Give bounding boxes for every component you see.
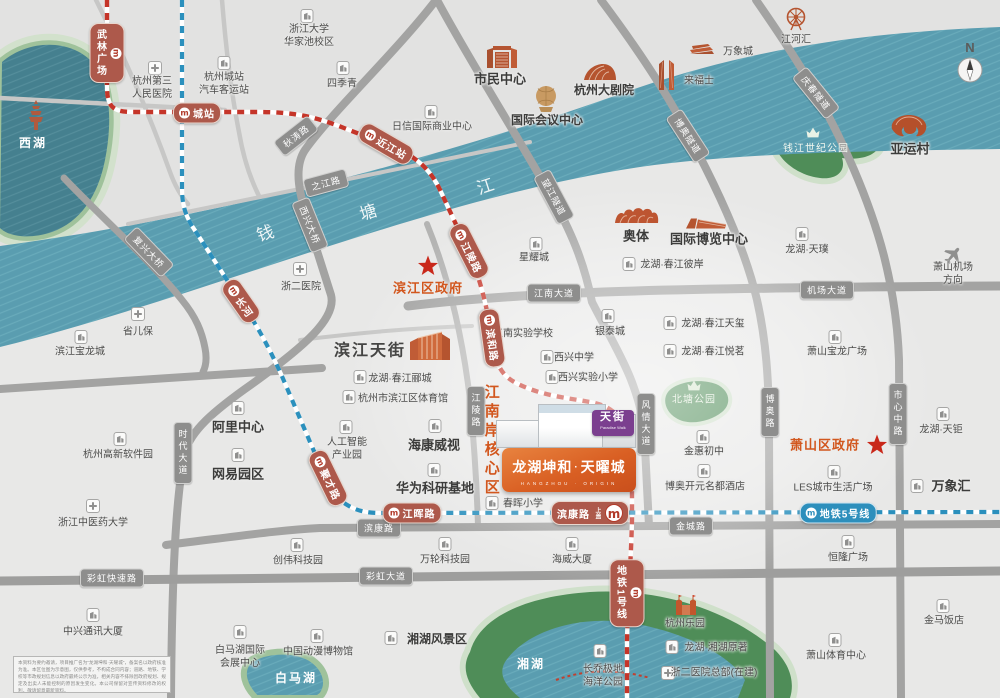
- place-label: 江河汇: [781, 34, 811, 47]
- place-label: 龙湖·春江郦城: [368, 373, 431, 386]
- building-icon: [698, 464, 711, 478]
- road-label: 复兴大桥: [123, 226, 174, 278]
- place-label: 西湖: [19, 136, 47, 152]
- building-icon: [664, 344, 677, 358]
- building-icon: [566, 537, 579, 551]
- road-label: 望江隧道: [533, 169, 575, 226]
- olympic-stadium-icon: [614, 207, 660, 225]
- place-label: 杭州高新软件园: [83, 449, 153, 462]
- building-icon: [439, 537, 452, 551]
- station-label: 地铁1号线: [613, 565, 628, 621]
- road-label: 彩虹大道: [359, 567, 413, 586]
- place-label: 杭州乐园: [665, 618, 705, 631]
- place-label: 杭州城站 汽车客运站: [199, 71, 249, 97]
- place-label: 滨江宝龙城: [55, 346, 105, 359]
- building-icon: [343, 390, 356, 404]
- road-label: 西兴大桥: [291, 196, 329, 253]
- ferris-wheel-icon: [785, 7, 807, 31]
- place-label: LES城市生活广场: [794, 482, 873, 495]
- place-label: 中国动漫博物馆: [283, 646, 353, 659]
- metro-logo-icon: m: [111, 48, 122, 59]
- metro-station: m武林广场: [90, 23, 125, 83]
- place-label: 金马饭店: [924, 615, 964, 628]
- station-label: 滨康路: [557, 506, 590, 521]
- place-label: 龙湖·春江彼岸: [640, 259, 703, 272]
- building-icon: [425, 105, 438, 119]
- place-label: 恒隆广场: [828, 552, 868, 565]
- building-icon: [354, 370, 367, 384]
- river-name-char: 塘: [357, 200, 381, 227]
- place-label: 龙湖·湘湖原著: [684, 642, 747, 655]
- paradise-walk-sublabel: Paradise Walk: [592, 425, 634, 430]
- metro-logo-icon: m: [483, 314, 495, 326]
- place-label: 市民中心: [474, 72, 526, 89]
- place-label: 萧山宝龙广场: [807, 346, 867, 359]
- place-label: 华为科研基地: [396, 481, 474, 498]
- metro-logo-icon: m: [179, 108, 190, 119]
- building-icon: [829, 633, 842, 647]
- place-label: 奥体: [623, 229, 649, 246]
- star-icon: [417, 256, 439, 277]
- station-label: 近江站: [374, 133, 410, 162]
- place-label: 西兴实验小学: [558, 372, 618, 385]
- building-icon: [541, 350, 554, 364]
- building-icon: [311, 629, 324, 643]
- station-label: 城站: [193, 106, 215, 121]
- building-icon: [594, 644, 607, 658]
- road-label: 机场大道: [800, 281, 854, 300]
- place-label: 创伟科技园: [273, 555, 323, 568]
- property-subtitle: HANGZHOU · ORIGIN: [502, 481, 636, 486]
- place-label: 长乔极地 海洋公园: [583, 663, 623, 689]
- place-label: 浙江大学 华家池校区: [284, 23, 334, 49]
- station-label: 江陵路: [458, 239, 486, 275]
- place-label: 国际博览中心: [670, 232, 748, 249]
- road-label: 博奥隧道: [665, 108, 710, 164]
- hospital-icon: [148, 61, 162, 75]
- place-label: 浙江中医药大学: [58, 517, 128, 530]
- metro-station: m滨和路: [477, 307, 506, 368]
- metro-logo-icon: m: [313, 454, 328, 469]
- building-icon: [340, 420, 353, 434]
- metro-station: m江陵路: [446, 220, 491, 282]
- metro-station: 滨康路上盖m: [551, 501, 629, 525]
- park-icon: [688, 381, 701, 392]
- expo-center-icon: [685, 216, 729, 231]
- building-icon: [842, 535, 855, 549]
- road-label: 秋涛路: [273, 115, 319, 157]
- station-label: 长河: [233, 293, 258, 320]
- place-label: 海康威视: [408, 438, 460, 455]
- building-icon: [546, 370, 559, 384]
- property-marker: 天街 Paradise Walk 龙湖坤和·天曜城 HANGZHOU · ORI…: [494, 400, 642, 494]
- station-label: 武林广场: [93, 29, 108, 77]
- building-icon: [337, 61, 350, 75]
- park-icon: [807, 128, 820, 139]
- place-label: 钱江世纪公园: [783, 143, 849, 156]
- mixc-mall-icon: [688, 42, 716, 56]
- road-label: 庆春隧道: [792, 66, 841, 120]
- river-name-char: 江: [474, 174, 498, 201]
- place-label: 白马湖国际 会展中心: [215, 644, 265, 670]
- property-logo-plate: 龙湖坤和·天曜城 HANGZHOU · ORIGIN: [502, 448, 636, 492]
- building-icon: [937, 407, 950, 421]
- place-label: 春晖小学: [503, 498, 543, 511]
- civic-center-icon: [485, 44, 519, 68]
- building-icon: [87, 608, 100, 622]
- pagoda-icon: [27, 100, 45, 130]
- station-label: 聚才路: [317, 466, 345, 502]
- building-icon: [232, 401, 245, 415]
- building-icon: [530, 237, 543, 251]
- metro-logo-icon: m: [605, 504, 623, 522]
- place-label: 杭州市滨江区体育馆: [358, 393, 448, 406]
- building-icon: [911, 479, 924, 493]
- road-label: 博奥路: [761, 387, 780, 437]
- place-label: 网易园区: [212, 467, 264, 484]
- building-icon: [697, 430, 710, 444]
- place-label: 万象城: [723, 46, 753, 59]
- metro-station: m城站: [173, 103, 221, 124]
- road-label: 江南大道: [527, 284, 581, 303]
- compass: N: [952, 40, 988, 88]
- metro-station: m地铁1号线: [610, 559, 645, 627]
- place-label: 海威大厦: [552, 554, 592, 567]
- building-icon: [623, 257, 636, 271]
- place-label: 湘湖: [517, 657, 545, 673]
- building-icon: [218, 56, 231, 70]
- place-label: 杭州大剧院: [574, 83, 634, 99]
- metro-station: m江晖路: [383, 503, 442, 524]
- place-label: 浙二医院: [281, 281, 321, 294]
- place-label: 日信国际商业中心: [392, 121, 472, 134]
- place-label: 白马湖: [275, 671, 317, 687]
- metro-station: m地铁5号线: [800, 503, 877, 524]
- station-label: 江晖路: [403, 506, 436, 521]
- place-label: 龙湖·天钜: [919, 424, 962, 437]
- place-label: 萧山机场方向: [930, 261, 977, 287]
- place-label: 阿里中心: [212, 420, 264, 437]
- place-label: 银泰城: [595, 326, 625, 339]
- road-label: 金城路: [669, 517, 713, 536]
- hospital-icon: [293, 262, 307, 276]
- building-icon: [429, 419, 442, 433]
- station-label: 滨和路: [483, 328, 502, 363]
- disclaimer-text: 本资料为要约邀请，项目推广名为“龙湖坤和·天曜城”，备案名以政府核准为准。本区位…: [18, 660, 166, 693]
- place-label: 万轮科技园: [420, 554, 470, 567]
- place-label: 国际会议中心: [511, 113, 583, 129]
- property-name: 天曜城: [581, 459, 626, 475]
- compass-n-label: N: [952, 40, 988, 55]
- building-icon: [796, 227, 809, 241]
- station-label: 地铁5号线: [820, 506, 871, 521]
- place-label: 杭州第三 人民医院: [132, 75, 172, 101]
- building-icon: [664, 316, 677, 330]
- metro-station: m长河: [219, 275, 264, 326]
- place-label: 湘湖风景区: [407, 632, 467, 648]
- place-label: 四季青: [327, 78, 357, 91]
- paradise-walk-mall-icon: [408, 328, 452, 362]
- place-label: 龙湖·天璞: [785, 244, 828, 257]
- map-labels-layer: 秋涛路之江路西兴大桥复兴大桥望江隧道博奥隧道庆春隧道江南大道机场大道时代大道江陵…: [0, 0, 1000, 698]
- place-label: 滨江天街: [334, 342, 406, 363]
- place-label: 龙湖·春江悦茗: [681, 346, 744, 359]
- raffles-towers-icon: [656, 58, 678, 90]
- road-label: 市心中路: [889, 383, 908, 445]
- place-label: 滨江区政府: [393, 281, 463, 298]
- theme-park-castle-icon: [673, 593, 699, 615]
- place-label: 博奥开元名都酒店: [665, 481, 745, 494]
- building-icon: [828, 465, 841, 479]
- building-icon: [114, 432, 127, 446]
- map-canvas: 秋涛路之江路西兴大桥复兴大桥望江隧道博奥隧道庆春隧道江南大道机场大道时代大道江陵…: [0, 0, 1000, 698]
- building-icon: [666, 640, 679, 654]
- place-label: 省儿保: [123, 326, 153, 339]
- place-label: 万象汇: [931, 479, 970, 496]
- asian-games-village-icon: [889, 113, 929, 139]
- place-label: 西兴中学: [554, 352, 594, 365]
- place-label: 金惠初中: [684, 446, 724, 459]
- compass-dial: [957, 57, 983, 83]
- river-name-char: 钱: [254, 221, 278, 248]
- road-label: 彩虹快速路: [80, 569, 144, 588]
- station-sublabel: 上盖: [593, 507, 602, 519]
- road-label: 时代大道: [174, 422, 193, 484]
- building-icon: [291, 538, 304, 552]
- hospital-icon: [131, 307, 145, 321]
- conference-sphere-icon: [533, 85, 559, 113]
- building-icon: [301, 9, 314, 23]
- place-label: 人工智能 产业园: [327, 436, 367, 462]
- building-icon: [385, 631, 398, 645]
- road-label: 之江路: [302, 168, 349, 198]
- metro-logo-icon: m: [453, 228, 468, 243]
- building-icon: [75, 330, 88, 344]
- place-label: 萧山体育中心: [806, 650, 866, 663]
- property-brand: 龙湖坤和: [512, 459, 572, 475]
- metro-logo-icon: m: [631, 588, 642, 599]
- building-icon: [486, 496, 499, 510]
- metro-logo-icon: m: [389, 508, 400, 519]
- building-icon: [428, 463, 441, 477]
- paradise-walk-label: 天街: [592, 410, 634, 425]
- building-icon: [829, 330, 842, 344]
- property-mall-rendering: 天街 Paradise Walk: [494, 400, 642, 448]
- paradise-walk-logo: 天街 Paradise Walk: [592, 410, 634, 436]
- metro-logo-icon: m: [806, 508, 817, 519]
- grand-theatre-icon: [583, 63, 617, 81]
- building-icon: [232, 448, 245, 462]
- place-label: 亚运村: [890, 142, 929, 159]
- place-label: 浙二医院总部(在建): [671, 667, 758, 680]
- place-label: 来福士: [684, 75, 714, 88]
- place-label: 北塘公园: [672, 394, 716, 407]
- place-label: 中兴通讯大厦: [63, 626, 123, 639]
- building-icon: [937, 599, 950, 613]
- place-label: 星耀城: [519, 252, 549, 265]
- disclaimer-box: 本资料为要约邀请，项目推广名为“龙湖坤和·天曜城”，备案名以政府核准为准。本区位…: [13, 656, 171, 693]
- building-icon: [602, 309, 615, 323]
- place-label: 龙湖·春江天玺: [681, 318, 744, 331]
- place-label: 萧山区政府: [790, 438, 860, 455]
- building-icon: [234, 625, 247, 639]
- star-icon: [866, 435, 888, 456]
- hospital-icon: [86, 499, 100, 513]
